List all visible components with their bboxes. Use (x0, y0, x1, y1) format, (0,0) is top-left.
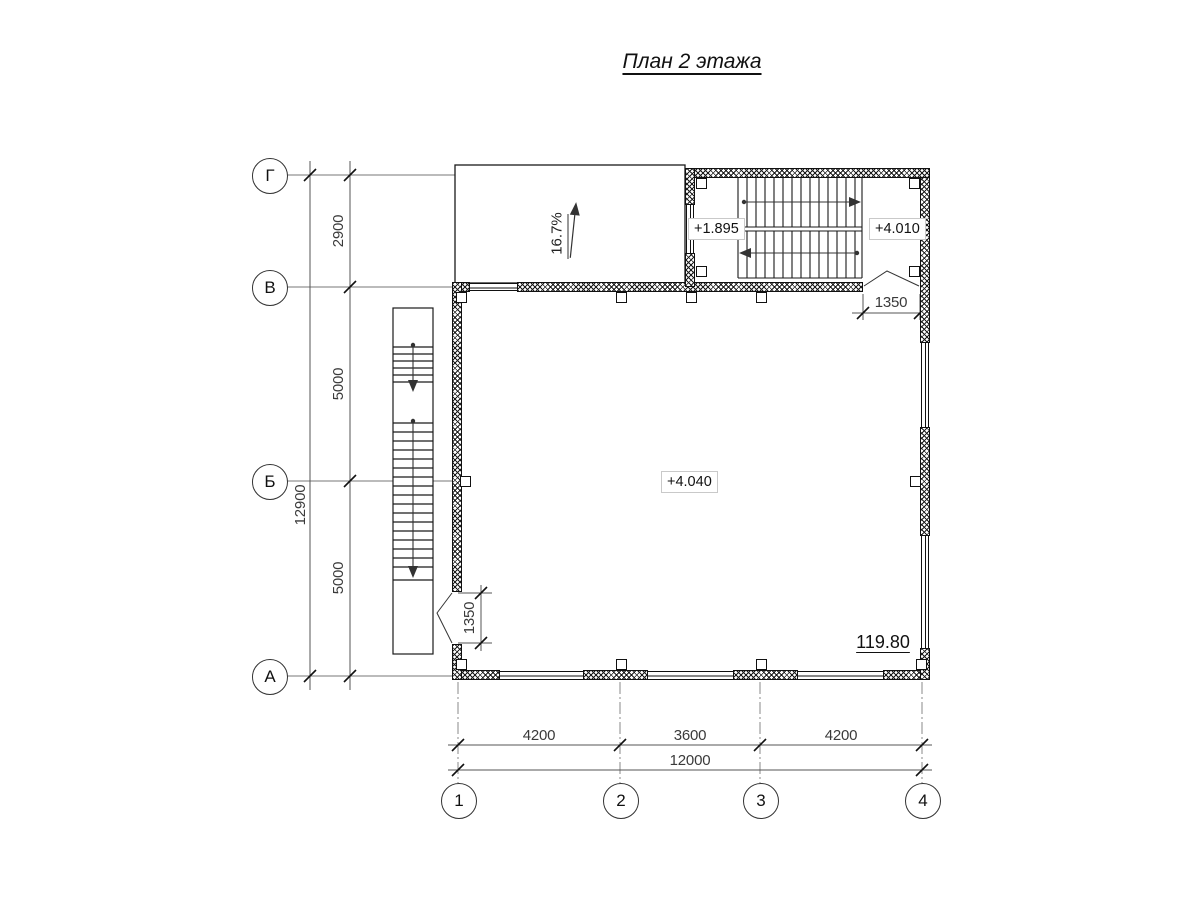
axis-label: 2 (616, 791, 625, 811)
wall-segment (733, 670, 798, 680)
axis-label: А (264, 667, 275, 687)
column-mark (910, 476, 921, 487)
wall-segment (685, 168, 695, 205)
ramp-outline (455, 165, 685, 283)
plan-linework (0, 0, 1200, 900)
dim-door-top: 1350 (866, 295, 916, 311)
column-mark (616, 659, 627, 670)
wall-segment (920, 168, 930, 343)
ramp-slope-label: 16.7% (549, 202, 566, 266)
column-mark (456, 292, 467, 303)
axis-label: 3 (756, 791, 765, 811)
axis-label: 4 (918, 791, 927, 811)
axis-bubble-col-1: 1 (441, 783, 477, 819)
dim-row-segment: 2900 (331, 201, 347, 261)
column-mark (756, 659, 767, 670)
elevation-label-stair-mid: +1.895 (688, 218, 745, 240)
column-mark (456, 659, 467, 670)
column-mark (916, 659, 927, 670)
room-area-label: 119.80 (843, 632, 923, 653)
dim-col-segment: 4200 (811, 728, 871, 744)
dim-col-total: 12000 (655, 753, 725, 769)
elevation-label-stair-top: +4.010 (869, 218, 926, 240)
axis-bubble-row-v: В (252, 270, 288, 306)
wall-segment (583, 670, 648, 680)
axis-label: Г (265, 166, 274, 186)
stairwell-flights (738, 178, 862, 278)
axis-bubble-row-b: Б (252, 464, 288, 500)
axis-label: 1 (454, 791, 463, 811)
column-mark (909, 266, 920, 277)
column-mark (696, 266, 707, 277)
column-mark (460, 476, 471, 487)
window (500, 671, 583, 680)
dim-row-segment: 5000 (331, 354, 347, 414)
axis-bubble-col-3: 3 (743, 783, 779, 819)
elevation-label-floor: +4.040 (661, 471, 718, 493)
window (470, 283, 517, 291)
dim-col-segment: 3600 (660, 728, 720, 744)
door-swings (437, 271, 919, 643)
wall-segment (452, 282, 462, 592)
dim-row-total: 12900 (293, 475, 309, 535)
axis-bubble-row-g: Г (252, 158, 288, 194)
axis-bubble-col-2: 2 (603, 783, 639, 819)
column-mark (756, 292, 767, 303)
dim-row-segment: 5000 (331, 548, 347, 608)
wall-segment (920, 427, 930, 536)
window (798, 671, 883, 680)
wall-segment (685, 253, 695, 287)
column-mark (686, 292, 697, 303)
floor-plan-canvas: План 2 этажа (0, 0, 1200, 900)
window (921, 343, 929, 427)
drawing-title: План 2 этажа (552, 50, 832, 74)
dim-door-bottom: 1350 (462, 588, 478, 648)
window (648, 671, 733, 680)
axis-label: В (264, 278, 275, 298)
axis-label: Б (264, 472, 275, 492)
column-mark (616, 292, 627, 303)
dim-col-segment: 4200 (509, 728, 569, 744)
column-mark (696, 178, 707, 189)
column-mark (909, 178, 920, 189)
wall-segment (685, 168, 930, 178)
axis-bubble-col-4: 4 (905, 783, 941, 819)
axis-bubble-row-a: А (252, 659, 288, 695)
